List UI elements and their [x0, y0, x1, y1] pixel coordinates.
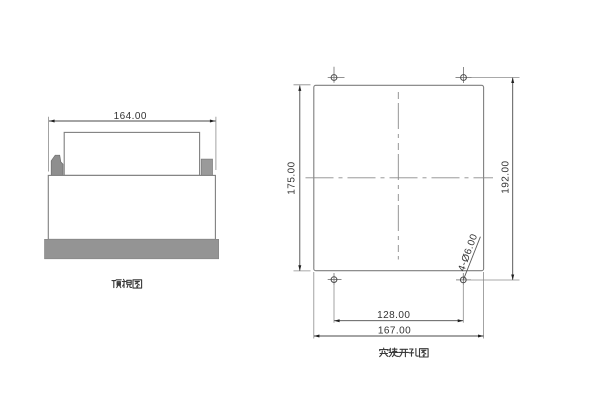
svg-text:128.00: 128.00	[377, 310, 410, 321]
svg-text:164.00: 164.00	[114, 111, 147, 122]
svg-text:167.00: 167.00	[378, 325, 411, 336]
svg-text:192.00: 192.00	[501, 161, 512, 194]
svg-text:175.00: 175.00	[287, 161, 298, 194]
